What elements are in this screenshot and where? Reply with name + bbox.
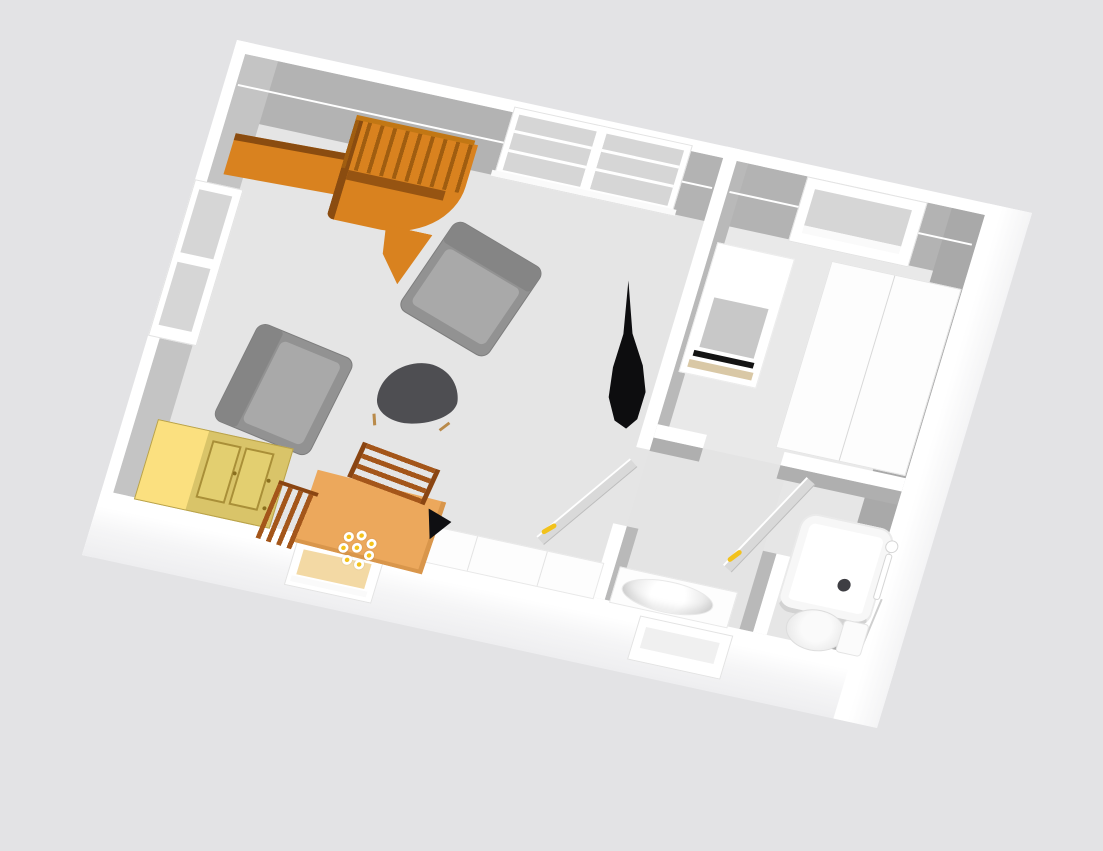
window-pane: [640, 627, 720, 664]
cabinet-knob: [266, 478, 271, 483]
apartment-plan: [82, 40, 1032, 728]
wardrobe-door-seam: [839, 276, 896, 461]
counter-seam: [467, 536, 478, 571]
shower-drain: [836, 578, 852, 593]
window-pane: [159, 262, 211, 332]
staircase-lower-run: [223, 133, 351, 195]
coffee-table-leg: [372, 413, 376, 425]
desk-chair: [699, 297, 768, 358]
render-viewport: [0, 0, 1103, 851]
counter-seam: [537, 552, 548, 587]
